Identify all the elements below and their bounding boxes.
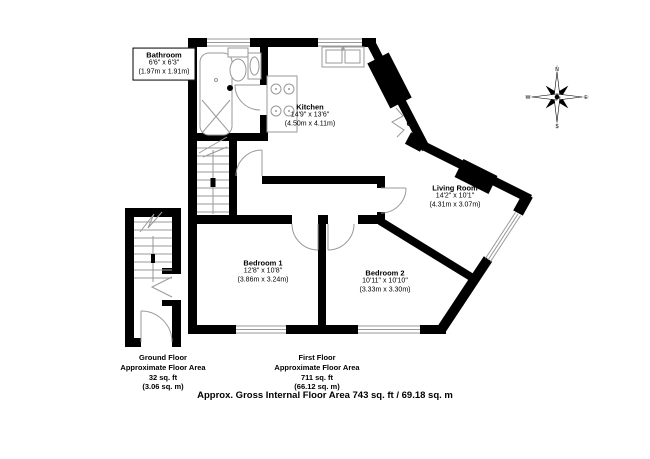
room-size-metric: (3.33m x 3.30m) [360,287,411,296]
room-name: Bathroom [139,51,190,60]
first-floor-line2: 711 sq. ft [274,373,359,383]
front-door [141,311,172,342]
room-size-imperial: 14'9" x 13'6" [285,112,335,121]
ground-floor-line2: 32 sq. ft [120,373,205,383]
room-size-imperial: 14'2" x 10'1" [430,193,481,202]
ground-floor-line1: Approximate Floor Area [120,363,205,373]
gross-internal-area-note: Approx. Gross Internal Floor Area 743 sq… [197,390,453,401]
room-size-metric: (4.50m x 4.11m) [285,121,335,130]
side-entry-arrow [152,277,172,297]
bathtub [200,53,232,135]
first-floor-title: First Floor [274,353,359,363]
bathroom-dot [227,85,233,91]
living-room-label: Living Room 14'2" x 10'1" (4.31m x 3.07m… [430,184,481,211]
cupboard-label: C [406,121,411,128]
bedroom2-label: Bedroom 2 10'11" x 10'10" (3.33m x 3.30m… [360,269,411,296]
ground-floor-area-note: Ground Floor Approximate Floor Area 32 s… [120,353,205,392]
first-floor-line1: Approximate Floor Area [274,363,359,373]
room-name: Bedroom 1 [238,259,289,268]
bedroom1-door [292,224,318,250]
room-size-imperial: 12'8" x 10'8" [238,268,289,277]
room-name: Bedroom 2 [360,269,411,278]
room-name: Living Room [430,184,481,193]
bedroom2-door [328,224,354,250]
room-size-metric: (4.31m x 3.07m) [430,202,481,211]
first-floor-area-note: First Floor Approximate Floor Area 711 s… [274,353,359,392]
bathroom-door [235,85,260,110]
bathroom-window [207,39,250,46]
compass-rose: N E S W [525,65,589,130]
kitchen-window [318,39,362,46]
bedroom2-window [358,326,420,333]
room-name: Kitchen [285,103,335,112]
room-size-imperial: 10'11" x 10'10" [360,278,411,287]
ground-floor-line3: (3.06 sq. m) [120,382,205,392]
compass-west-label: W [526,95,531,101]
kitchen-sink [322,47,364,67]
stairs-direction-mark [151,254,155,263]
room-size-imperial: 6'6" x 6'3" [139,60,190,69]
basin [248,53,261,79]
floor-plan-page: C [0,0,650,459]
living-room-window [486,212,521,261]
bedroom1-label: Bedroom 1 12'8" x 10'8" (3.86m x 3.24m) [238,259,289,286]
kitchen-door [236,150,262,176]
room-size-metric: (3.86m x 3.24m) [238,277,289,286]
compass-north-label: N [555,67,559,73]
kitchen-label: Kitchen 14'9" x 13'6" (4.50m x 4.11m) [285,103,335,130]
compass-south-label: S [555,124,559,130]
bathroom-fixtures [200,48,261,135]
compass-east-label: E [584,95,588,101]
living-room-door [381,188,406,213]
ground-floor-plan [125,208,181,347]
stairs-direction-mark [211,178,216,187]
ground-floor-title: Ground Floor [120,353,205,363]
bathroom-label: Bathroom 6'6" x 6'3" (1.97m x 1.91m) [133,48,196,81]
first-floor-stairs [197,137,229,214]
toilet [228,48,248,81]
bedroom1-window [236,326,286,333]
room-size-metric: (1.97m x 1.91m) [139,69,190,78]
